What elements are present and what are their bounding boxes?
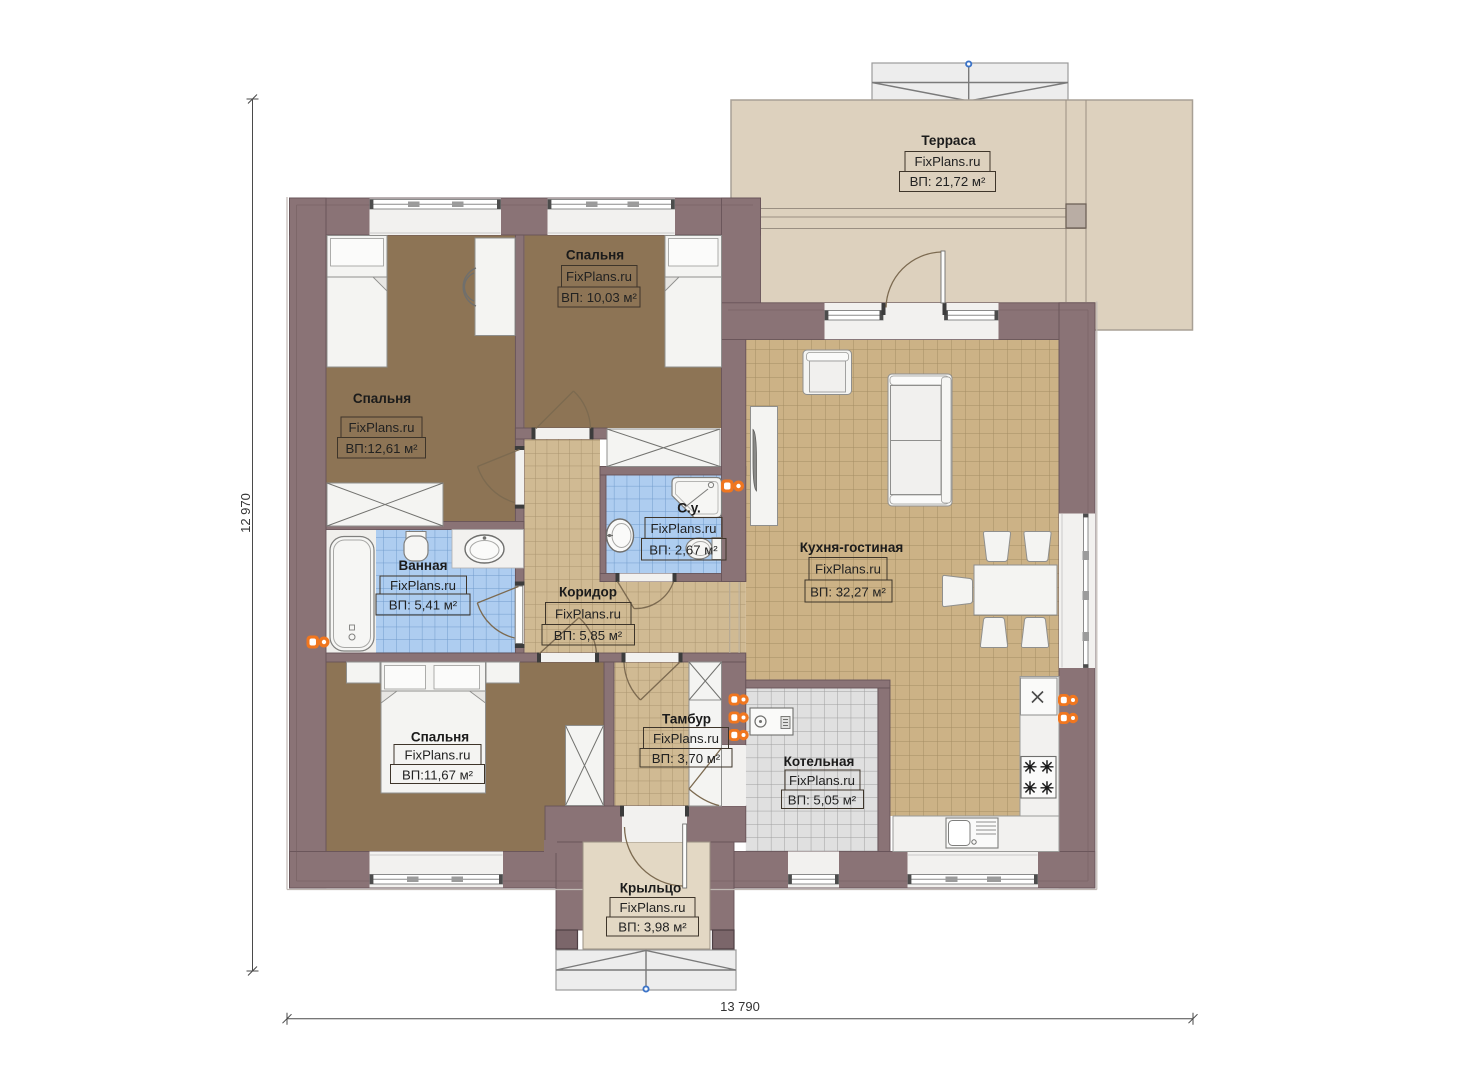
svg-text:FixPlans.ru: FixPlans.ru (789, 773, 855, 788)
svg-text:ВП: 5,05 м²: ВП: 5,05 м² (788, 793, 857, 808)
svg-text:ВП: 5,85 м²: ВП: 5,85 м² (554, 628, 623, 643)
svg-text:Ванная: Ванная (399, 558, 448, 573)
svg-text:FixPlans.ru: FixPlans.ru (405, 748, 471, 763)
svg-text:ВП: 32,27 м²: ВП: 32,27 м² (810, 585, 886, 600)
svg-text:FixPlans.ru: FixPlans.ru (651, 521, 717, 536)
svg-text:Спальня: Спальня (566, 248, 624, 263)
svg-text:ВП: 2,67 м²: ВП: 2,67 м² (649, 543, 718, 558)
svg-text:ВП:12,61 м²: ВП:12,61 м² (345, 441, 418, 456)
svg-text:ВП: 3,70 м²: ВП: 3,70 м² (652, 751, 721, 766)
svg-text:Спальня: Спальня (353, 391, 411, 406)
svg-text:FixPlans.ru: FixPlans.ru (653, 731, 719, 746)
svg-text:Тамбур: Тамбур (662, 712, 711, 727)
svg-text:ВП:11,67 м²: ВП:11,67 м² (402, 768, 474, 783)
svg-text:Кухня-гостиная: Кухня-гостиная (800, 540, 903, 555)
svg-text:ВП: 3,98 м²: ВП: 3,98 м² (618, 920, 687, 935)
svg-text:✳: ✳ (1040, 758, 1054, 777)
svg-text:Спальня: Спальня (411, 730, 469, 745)
svg-text:Крыльцо: Крыльцо (620, 881, 681, 896)
svg-text:ВП: 21,72 м²: ВП: 21,72 м² (910, 174, 986, 189)
svg-text:Коридор: Коридор (559, 585, 617, 600)
svg-text:FixPlans.ru: FixPlans.ru (566, 269, 632, 284)
svg-text:FixPlans.ru: FixPlans.ru (815, 562, 881, 577)
svg-text:FixPlans.ru: FixPlans.ru (620, 900, 686, 915)
svg-text:С.у.: С.у. (677, 501, 701, 516)
svg-text:✳: ✳ (1023, 779, 1037, 798)
svg-text:ВП: 5,41 м²: ВП: 5,41 м² (389, 598, 458, 613)
svg-text:ВП: 10,03 м²: ВП: 10,03 м² (561, 290, 637, 305)
svg-text:FixPlans.ru: FixPlans.ru (349, 420, 415, 435)
svg-text:FixPlans.ru: FixPlans.ru (915, 154, 981, 169)
svg-text:✳: ✳ (1023, 758, 1037, 777)
svg-text:FixPlans.ru: FixPlans.ru (555, 607, 621, 622)
svg-text:12 970: 12 970 (238, 493, 253, 533)
svg-text:Котельная: Котельная (784, 754, 855, 769)
svg-text:Терраса: Терраса (921, 133, 976, 148)
svg-text:FixPlans.ru: FixPlans.ru (390, 578, 456, 593)
svg-text:✳: ✳ (1040, 779, 1054, 798)
svg-text:13 790: 13 790 (720, 999, 760, 1014)
